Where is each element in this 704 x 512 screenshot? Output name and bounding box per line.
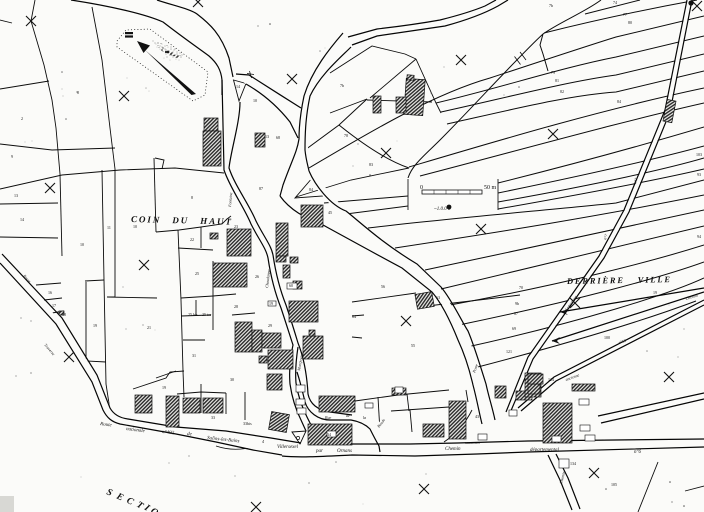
svg-text:10: 10 (253, 98, 257, 103)
svg-text:Rue: Rue (324, 415, 331, 420)
svg-text:13: 13 (265, 134, 269, 139)
svg-text:9b: 9b (515, 301, 519, 306)
svg-text:121: 121 (506, 349, 512, 354)
svg-text:30: 30 (230, 377, 234, 382)
svg-text:105: 105 (611, 482, 617, 487)
svg-text:DERRIÈRE VILLE: DERRIÈRE VILLE (566, 274, 672, 286)
svg-text:11: 11 (107, 225, 111, 230)
svg-text:par: par (315, 449, 323, 454)
svg-text:56: 56 (381, 284, 385, 289)
svg-text:Villersexel: Villersexel (277, 445, 299, 450)
svg-text:74: 74 (613, 0, 617, 5)
svg-text:84: 84 (617, 99, 621, 104)
svg-text:n°6: n°6 (634, 450, 641, 455)
svg-text:7b: 7b (549, 3, 553, 8)
svg-text:22: 22 (190, 237, 194, 242)
svg-text:93: 93 (697, 172, 701, 177)
svg-text:7b: 7b (340, 83, 344, 88)
svg-text:33: 33 (211, 415, 215, 420)
svg-text:63: 63 (436, 295, 440, 300)
svg-text:84: 84 (309, 187, 313, 192)
svg-text:43: 43 (475, 414, 479, 419)
svg-text:29: 29 (268, 323, 272, 328)
svg-text:19: 19 (269, 301, 273, 306)
svg-text:9: 9 (11, 154, 13, 159)
svg-text:81: 81 (555, 78, 559, 83)
svg-text:départemental: départemental (530, 448, 559, 453)
svg-text:14: 14 (20, 217, 24, 222)
svg-text:64: 64 (352, 314, 356, 319)
svg-text:80: 80 (628, 20, 632, 25)
svg-text:0: 0 (420, 185, 423, 191)
svg-text:68: 68 (276, 135, 280, 140)
svg-text:2: 2 (21, 116, 23, 121)
svg-text:25: 25 (195, 271, 199, 276)
svg-text:la: la (363, 415, 366, 420)
svg-text:19: 19 (653, 290, 657, 295)
svg-text:23: 23 (234, 224, 238, 229)
svg-text:17: 17 (52, 303, 56, 308)
svg-text:79: 79 (551, 70, 555, 75)
svg-text:19: 19 (162, 385, 166, 390)
svg-text:82: 82 (560, 89, 564, 94)
svg-text:4: 4 (262, 439, 264, 444)
svg-text:60: 60 (289, 283, 293, 288)
svg-text:69: 69 (512, 326, 516, 331)
svg-text:33bis: 33bis (243, 421, 252, 426)
svg-text:10: 10 (80, 242, 84, 247)
svg-text:8: 8 (191, 195, 193, 200)
svg-text:103: 103 (696, 152, 702, 157)
svg-text:16: 16 (48, 290, 52, 295)
svg-text:55: 55 (411, 343, 415, 348)
svg-text:50 m: 50 m (484, 185, 497, 191)
svg-text:26: 26 (255, 274, 259, 279)
svg-text:19: 19 (93, 323, 97, 328)
svg-text:10: 10 (133, 224, 137, 229)
svg-text:18: 18 (62, 312, 66, 317)
svg-text:25 ter: 25 ter (202, 312, 212, 317)
svg-text:Monument: Monument (464, 441, 481, 445)
svg-text:21: 21 (147, 325, 151, 330)
svg-text:34: 34 (327, 432, 331, 437)
svg-text:70: 70 (519, 285, 523, 290)
svg-text:134: 134 (570, 461, 576, 466)
svg-text:25 bis: 25 bis (188, 312, 198, 317)
svg-text:Ornans: Ornans (337, 449, 352, 454)
svg-text:28: 28 (234, 304, 238, 309)
svg-text:87: 87 (259, 186, 263, 191)
svg-text:de: de (346, 413, 350, 418)
svg-text:14: 14 (236, 84, 240, 89)
svg-text:94: 94 (697, 234, 701, 239)
svg-text:13: 13 (14, 193, 18, 198)
svg-text:78: 78 (344, 133, 348, 138)
svg-text:Chemin: Chemin (445, 447, 461, 452)
svg-text:77: 77 (623, 12, 627, 17)
svg-text:31: 31 (192, 353, 196, 358)
svg-text:83: 83 (369, 162, 373, 167)
svg-text:100: 100 (604, 335, 610, 340)
svg-text:67: 67 (514, 311, 518, 316)
svg-text:124: 124 (548, 377, 554, 382)
svg-text:~1.0.0 o: ~1.0.0 o (434, 207, 451, 212)
svg-text:45: 45 (328, 210, 332, 215)
